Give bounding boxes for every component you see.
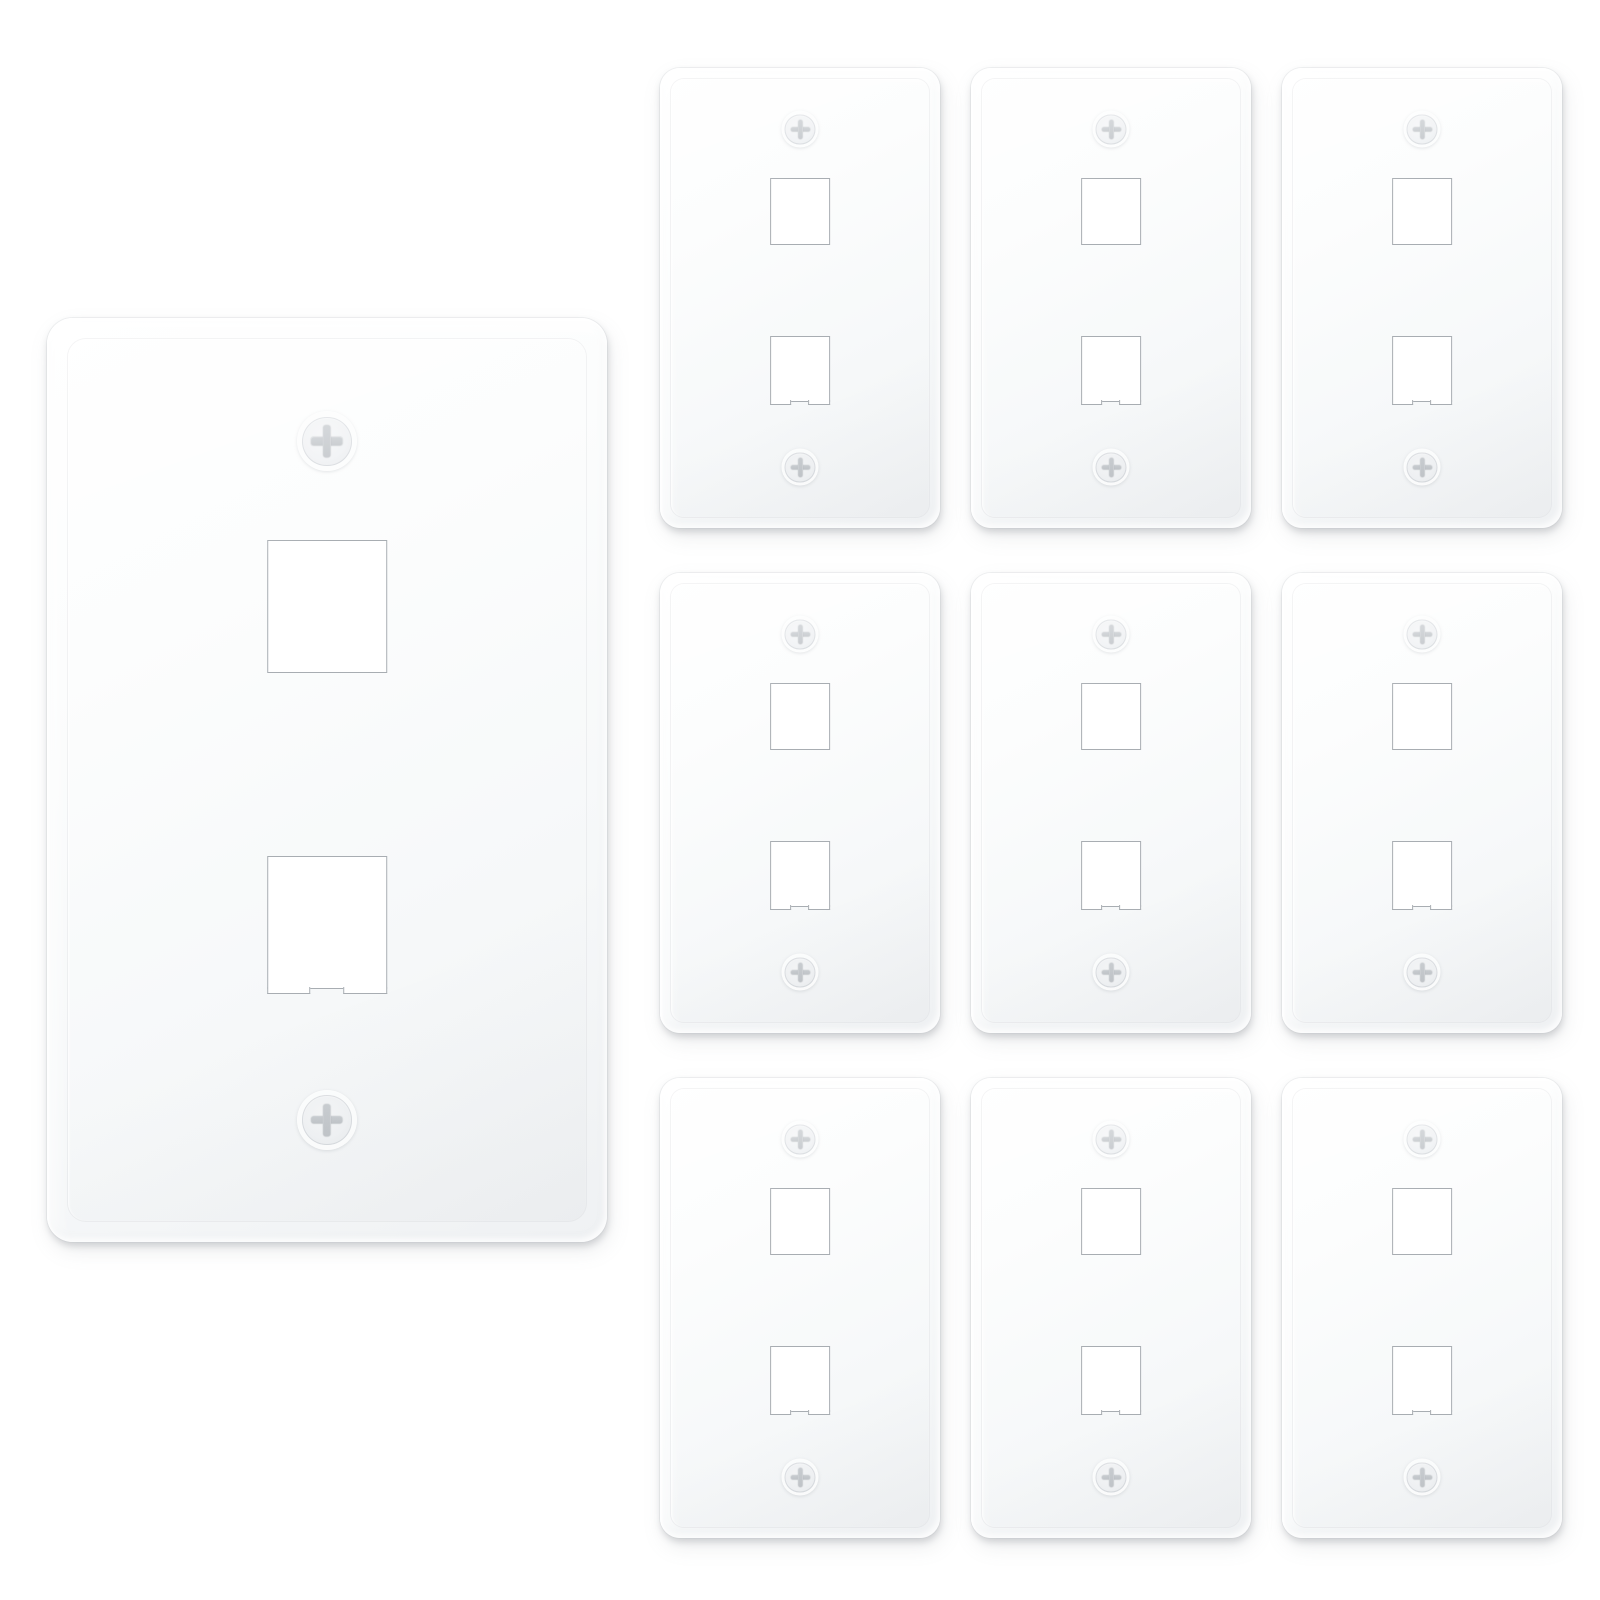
phillips-screw-bottom-icon: [1093, 449, 1130, 486]
plate-grid: [660, 68, 1562, 1538]
keystone-port-top: [1392, 1188, 1452, 1254]
keystone-latch-notch-right: [1431, 400, 1452, 405]
wall-plate-r1-c1: [660, 68, 940, 528]
phillips-screw-head-icon: [1407, 957, 1437, 987]
keystone-latch-notch-right: [1431, 1410, 1452, 1415]
phillips-screw-head-icon: [1407, 1124, 1437, 1154]
phillips-screw-bottom-icon: [782, 1459, 819, 1496]
phillips-screw-top-icon: [1093, 616, 1130, 653]
phillips-screw-top-icon: [1093, 111, 1130, 148]
phillips-screw-head-icon: [1096, 452, 1126, 482]
keystone-latch-notch-right: [1431, 905, 1452, 910]
phillips-screw-head-icon: [1096, 1462, 1126, 1492]
keystone-port-bottom: [770, 336, 830, 402]
keystone-port-bottom: [1392, 841, 1452, 907]
keystone-latch-notch-left: [1081, 400, 1102, 405]
keystone-latch-notch-right: [809, 1410, 830, 1415]
keystone-port-bottom: [267, 856, 387, 989]
keystone-port-top: [1081, 683, 1141, 749]
keystone-port-top: [770, 683, 830, 749]
phillips-screw-top-icon: [782, 1121, 819, 1158]
phillips-screw-head-icon: [785, 1462, 815, 1492]
phillips-screw-head-icon: [302, 417, 351, 466]
keystone-port-bottom: [1081, 336, 1141, 402]
keystone-latch-notch-right: [1120, 400, 1141, 405]
keystone-port-bottom: [770, 1346, 830, 1412]
phillips-screw-head-icon: [302, 1095, 351, 1144]
keystone-port-bottom: [1081, 841, 1141, 907]
keystone-latch-notch-right: [809, 400, 830, 405]
wall-plate-r1-c3: [1282, 68, 1562, 528]
keystone-latch-notch-left: [1392, 905, 1413, 910]
phillips-screw-top-icon: [297, 411, 357, 471]
wall-plate-r1-c2: [971, 68, 1251, 528]
keystone-latch-notch-left: [267, 987, 310, 994]
phillips-screw-bottom-icon: [1093, 954, 1130, 991]
keystone-port-top: [770, 178, 830, 244]
phillips-screw-head-icon: [785, 619, 815, 649]
phillips-screw-head-icon: [785, 114, 815, 144]
keystone-latch-notch-left: [1081, 1410, 1102, 1415]
wall-plate-r3-c1: [660, 1078, 940, 1538]
keystone-latch-notch-left: [1392, 400, 1413, 405]
wall-plate-r3-c2: [971, 1078, 1251, 1538]
keystone-port-bottom: [1392, 336, 1452, 402]
wall-plate-r3-c3: [1282, 1078, 1562, 1538]
keystone-port-top: [267, 540, 387, 673]
wall-plate-r2-c3: [1282, 573, 1562, 1033]
keystone-latch-notch-left: [1081, 905, 1102, 910]
keystone-port-top: [1392, 683, 1452, 749]
phillips-screw-top-icon: [1404, 111, 1441, 148]
keystone-latch-notch-left: [770, 1410, 791, 1415]
phillips-screw-top-icon: [782, 111, 819, 148]
phillips-screw-top-icon: [1093, 1121, 1130, 1158]
phillips-screw-head-icon: [1096, 619, 1126, 649]
phillips-screw-bottom-icon: [1404, 954, 1441, 991]
phillips-screw-top-icon: [782, 616, 819, 653]
phillips-screw-head-icon: [1407, 619, 1437, 649]
wall-plate-hero: [47, 318, 607, 1242]
keystone-port-top: [770, 1188, 830, 1254]
keystone-latch-notch-right: [343, 987, 386, 994]
wall-plate-r2-c1: [660, 573, 940, 1033]
keystone-latch-notch-right: [809, 905, 830, 910]
keystone-latch-notch-left: [1392, 1410, 1413, 1415]
keystone-port-bottom: [1081, 1346, 1141, 1412]
keystone-port-top: [1081, 1188, 1141, 1254]
phillips-screw-bottom-icon: [297, 1090, 357, 1150]
phillips-screw-bottom-icon: [1404, 449, 1441, 486]
phillips-screw-head-icon: [1096, 114, 1126, 144]
phillips-screw-head-icon: [785, 957, 815, 987]
keystone-port-top: [1081, 178, 1141, 244]
phillips-screw-head-icon: [1407, 114, 1437, 144]
keystone-port-bottom: [1392, 1346, 1452, 1412]
product-photo-canvas: { "scene": { "type": "product-photo", "s…: [0, 0, 1600, 1600]
phillips-screw-head-icon: [785, 1124, 815, 1154]
keystone-latch-notch-left: [770, 400, 791, 405]
phillips-screw-head-icon: [1407, 452, 1437, 482]
phillips-screw-head-icon: [785, 452, 815, 482]
phillips-screw-head-icon: [1407, 1462, 1437, 1492]
keystone-latch-notch-right: [1120, 905, 1141, 910]
phillips-screw-bottom-icon: [1404, 1459, 1441, 1496]
phillips-screw-bottom-icon: [1093, 1459, 1130, 1496]
keystone-latch-notch-left: [770, 905, 791, 910]
phillips-screw-head-icon: [1096, 1124, 1126, 1154]
keystone-port-top: [1392, 178, 1452, 244]
keystone-latch-notch-right: [1120, 1410, 1141, 1415]
phillips-screw-bottom-icon: [782, 954, 819, 991]
phillips-screw-top-icon: [1404, 616, 1441, 653]
phillips-screw-bottom-icon: [782, 449, 819, 486]
phillips-screw-head-icon: [1096, 957, 1126, 987]
keystone-port-bottom: [770, 841, 830, 907]
wall-plate-r2-c2: [971, 573, 1251, 1033]
phillips-screw-top-icon: [1404, 1121, 1441, 1158]
